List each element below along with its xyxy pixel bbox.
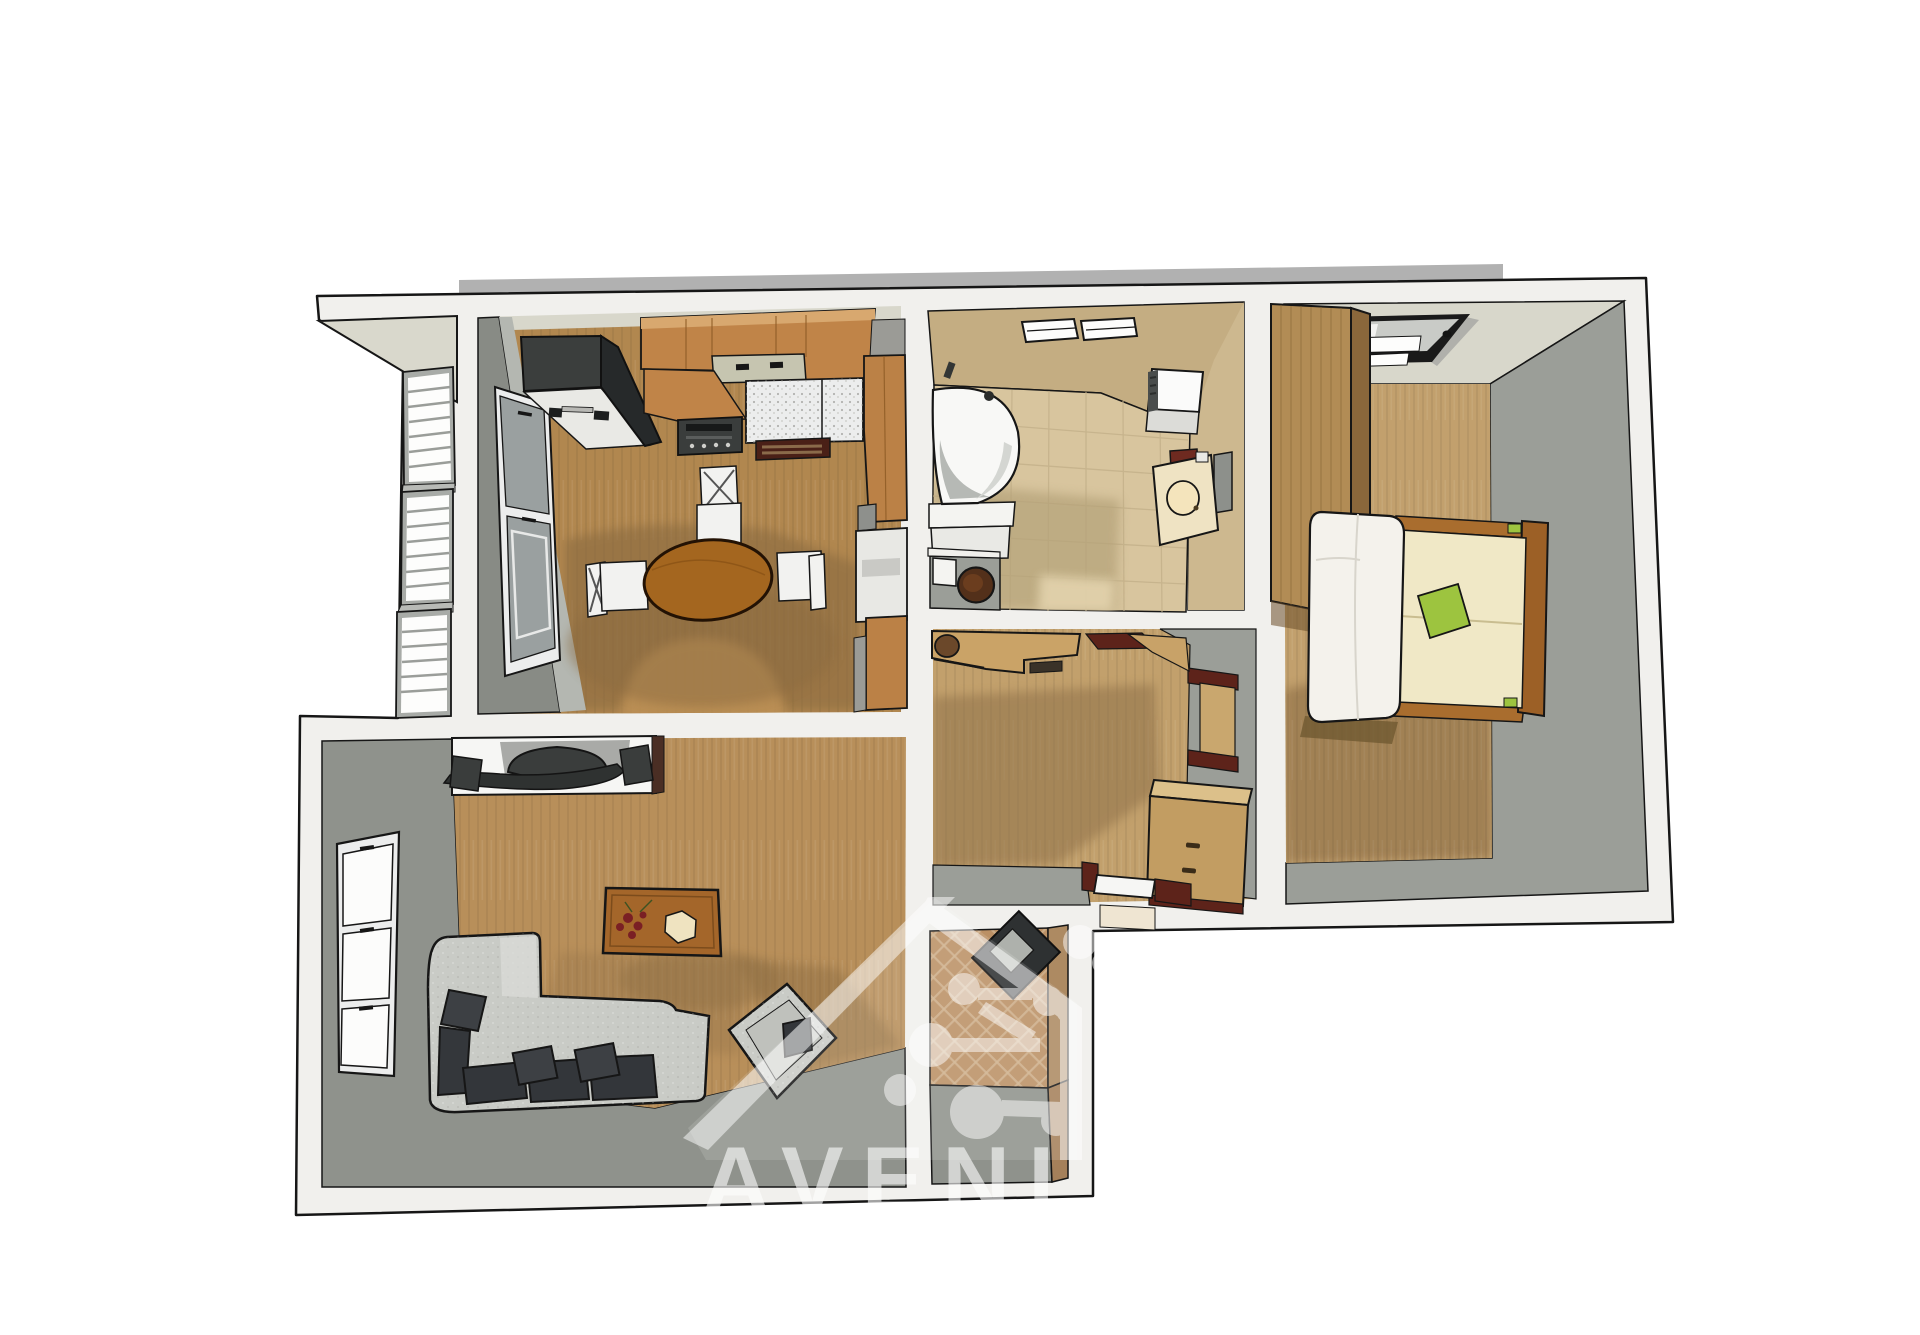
svg-text:AVENI: AVENI [702, 1127, 1072, 1232]
